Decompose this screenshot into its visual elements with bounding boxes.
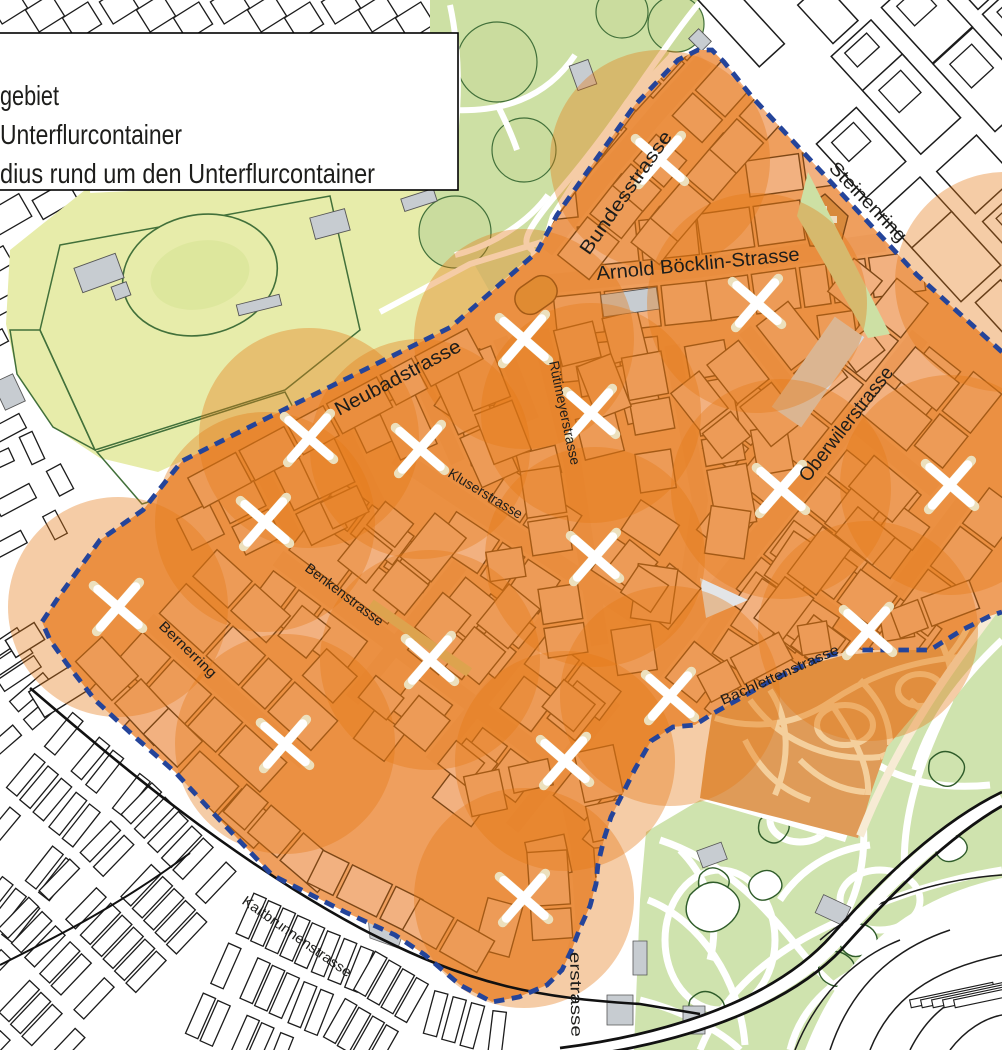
svg-text:erstrasse: erstrasse	[566, 952, 584, 1037]
svg-text:Unterflurcontainer: Unterflurcontainer	[0, 119, 182, 150]
svg-text:gebiet: gebiet	[0, 80, 59, 111]
svg-text:dius rund um den Unterflurcont: dius rund um den Unterflurcontainer	[0, 158, 375, 189]
